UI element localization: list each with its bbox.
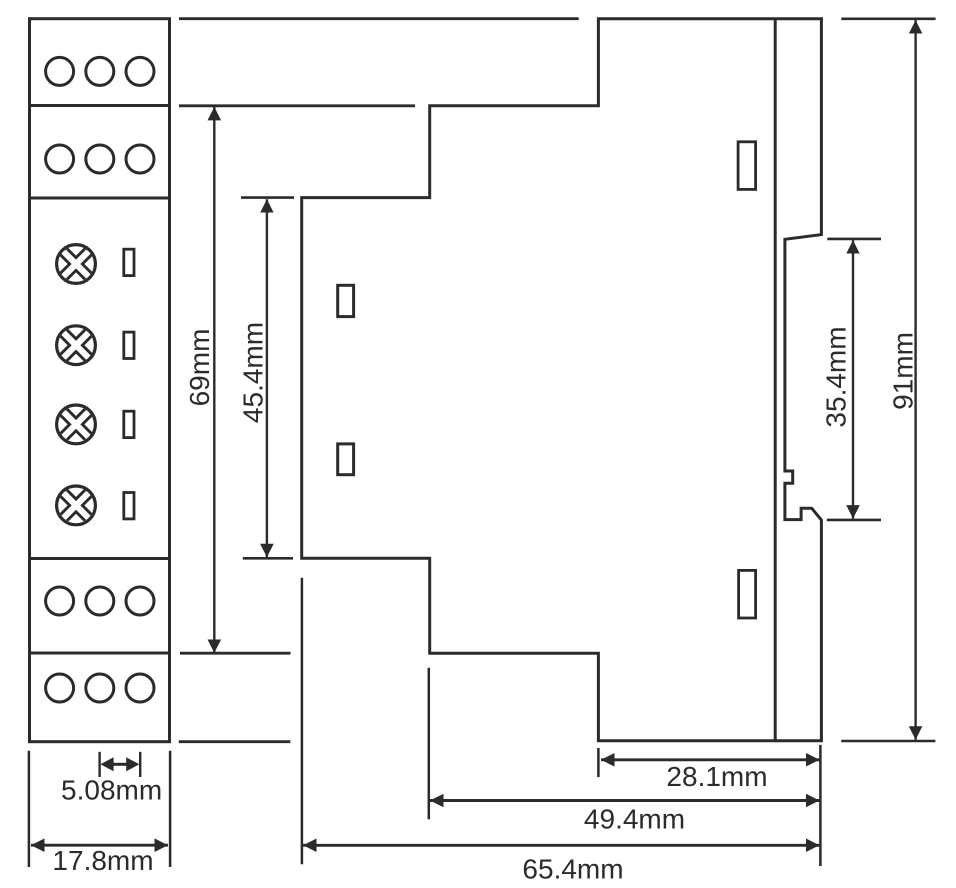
svg-text:28.1mm: 28.1mm (666, 761, 767, 792)
svg-text:91mm: 91mm (888, 332, 919, 410)
svg-text:45.4mm: 45.4mm (238, 322, 269, 423)
svg-text:17.8mm: 17.8mm (52, 845, 153, 876)
svg-text:35.4mm: 35.4mm (821, 326, 852, 427)
svg-text:49.4mm: 49.4mm (584, 803, 685, 834)
svg-text:5.08mm: 5.08mm (61, 774, 162, 805)
svg-text:65.4mm: 65.4mm (522, 854, 623, 885)
svg-text:69mm: 69mm (184, 329, 215, 407)
